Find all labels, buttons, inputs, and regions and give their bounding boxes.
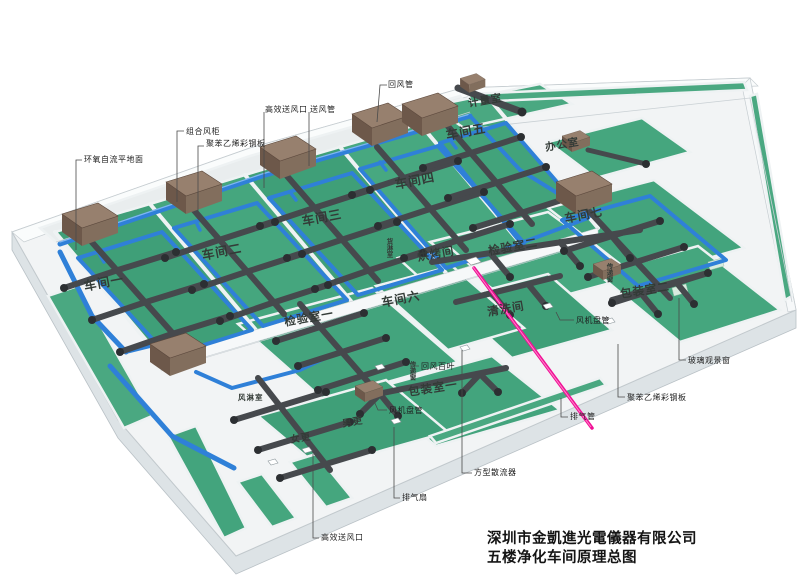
diagram-canvas: 车间一车间二车间三车间四车间五车间六车间七检验室一检验室二烘烤间清洗间包装室一包… bbox=[0, 0, 800, 587]
title-block: 深圳市金凱進光電儀器有限公司 五楼净化车间原理总图 bbox=[487, 530, 697, 568]
isometric-building bbox=[0, 0, 800, 587]
drawing-title: 五楼净化车间原理总图 bbox=[487, 549, 697, 568]
company-name: 深圳市金凱進光電儀器有限公司 bbox=[487, 530, 697, 549]
